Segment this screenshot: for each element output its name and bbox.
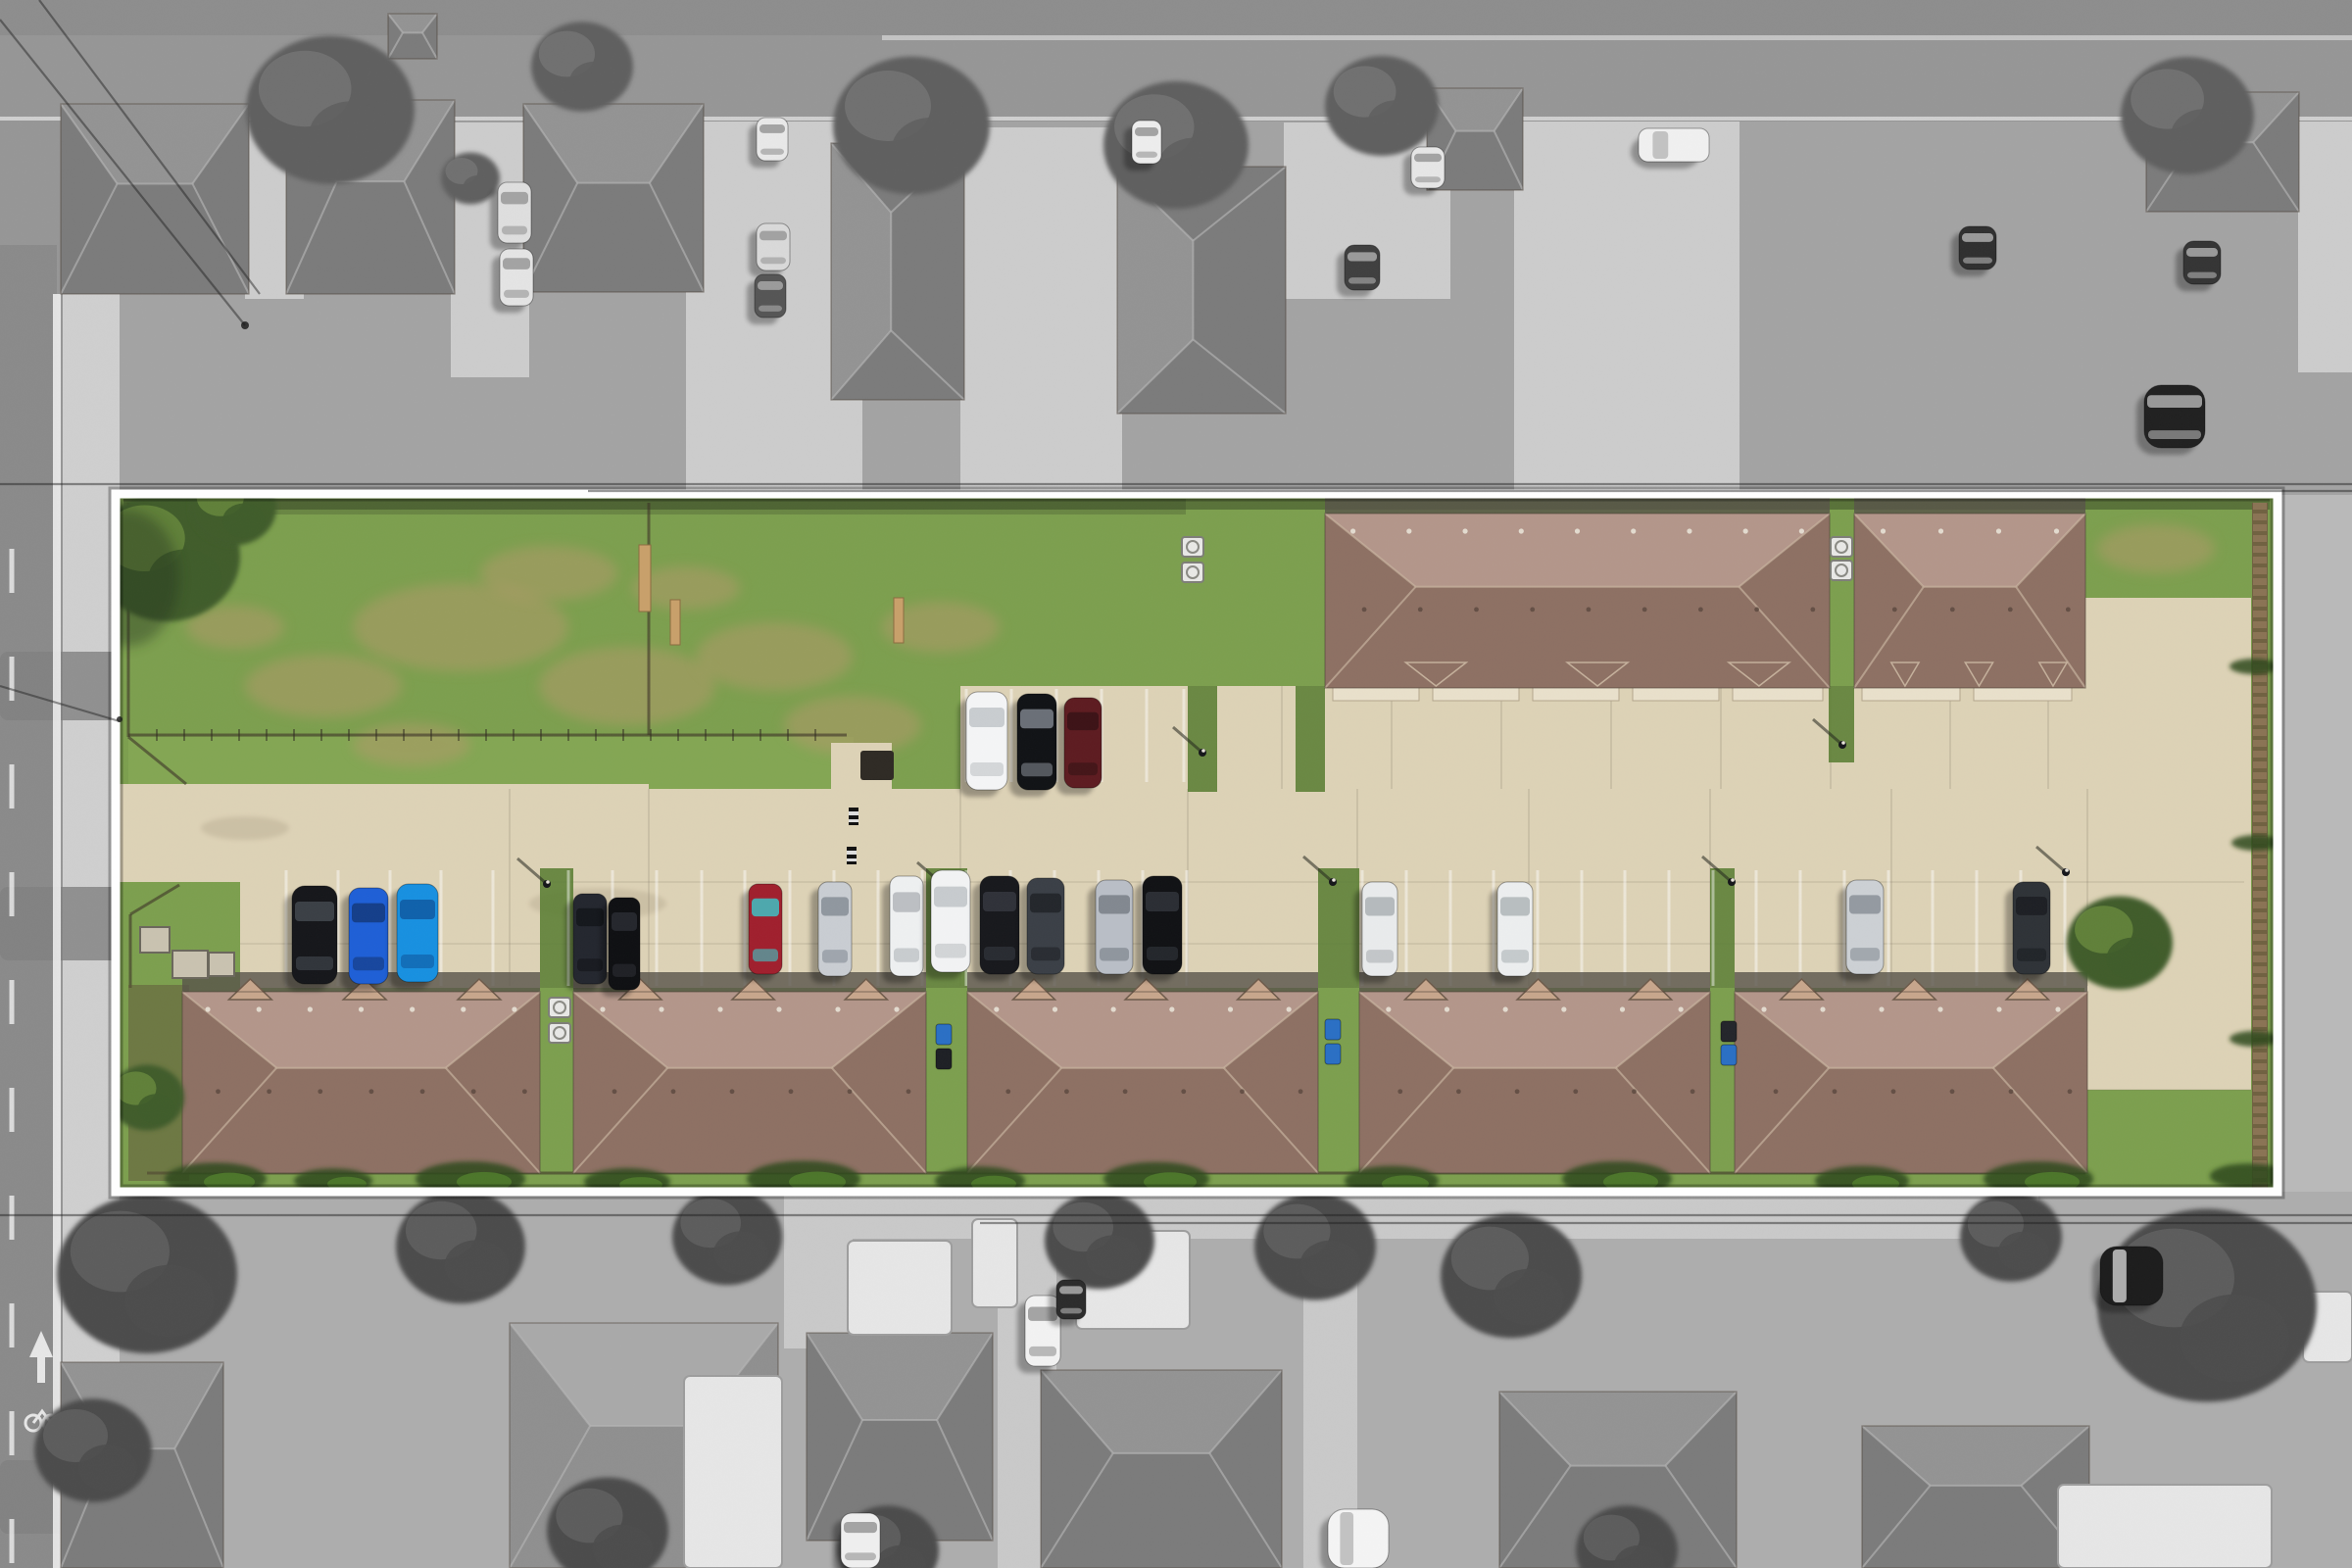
aerial-scene <box>0 0 2352 1568</box>
photo-grain-overlay <box>0 0 2352 1568</box>
aerial-photo-stage <box>0 0 2352 1568</box>
